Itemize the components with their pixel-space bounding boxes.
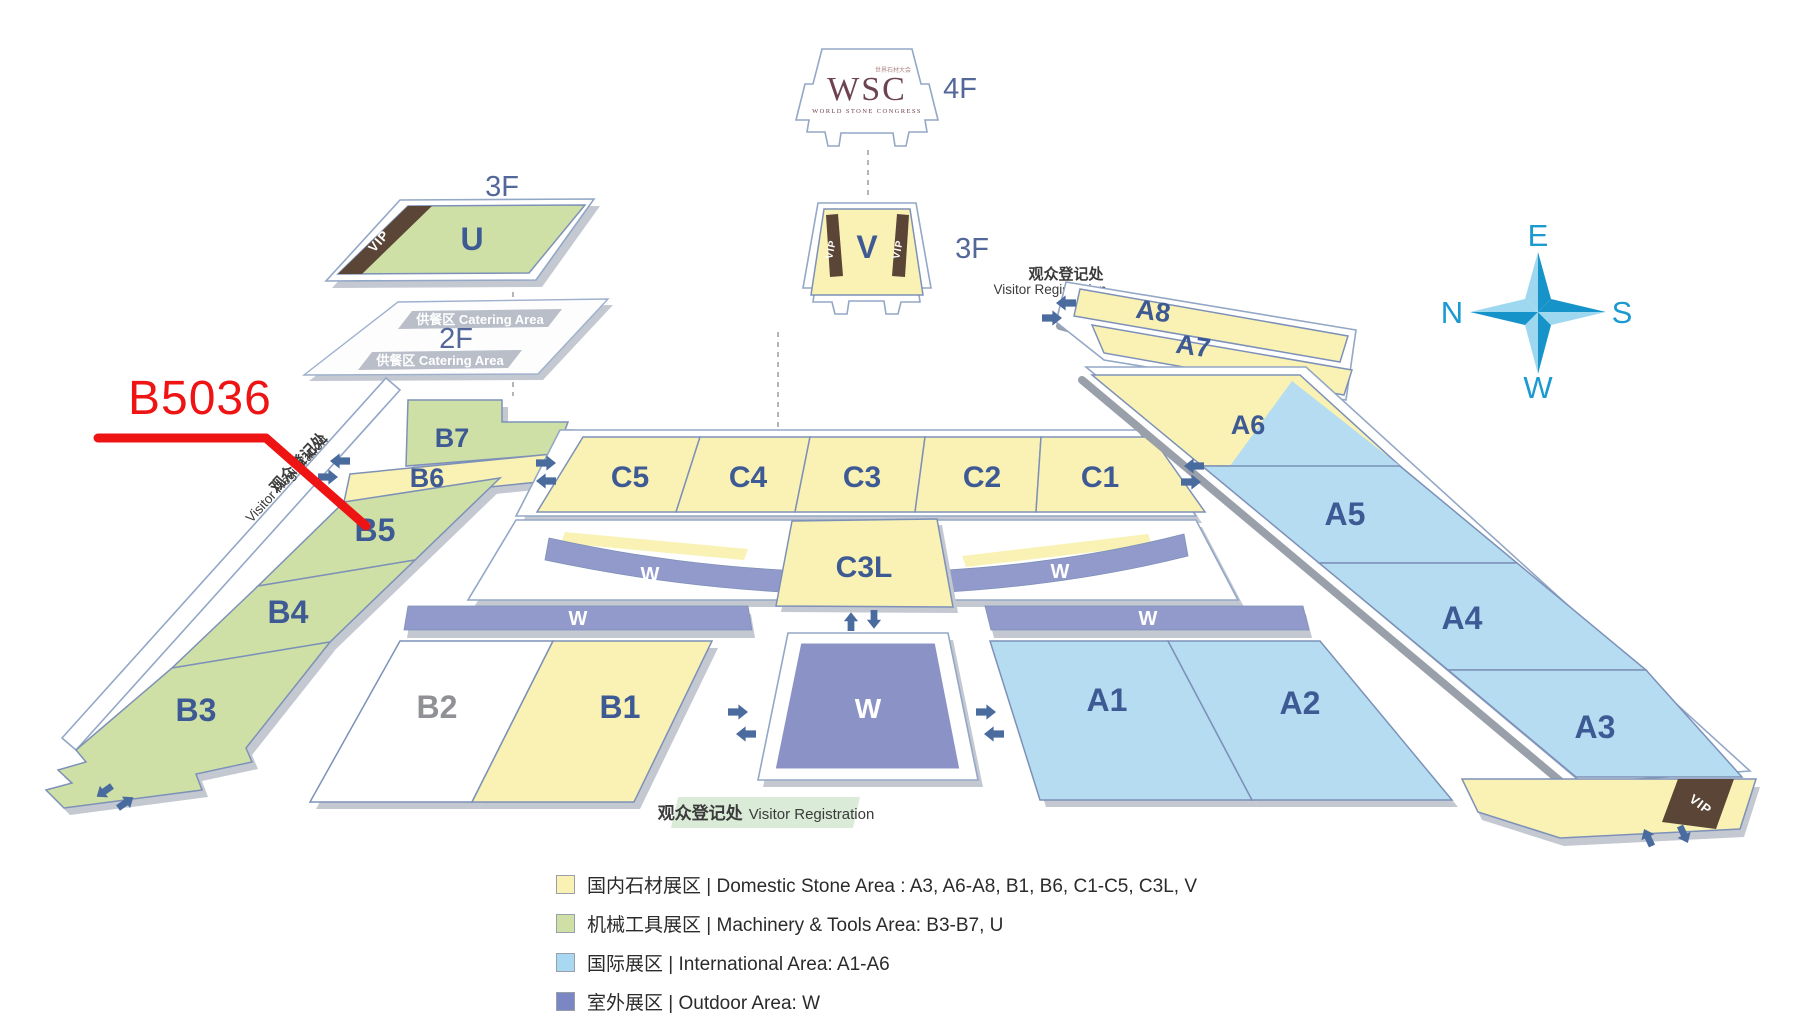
compass-rose: E N S W (1441, 218, 1633, 405)
hall-label-b4: B4 (268, 594, 309, 630)
hall-label-a3: A3 (1575, 709, 1616, 745)
legend-row-outdoor: 室外展区 | Outdoor Area: W (556, 989, 1197, 1013)
outdoor-label-right: W (1139, 608, 1158, 630)
hall-label-b2: B2 (417, 689, 458, 725)
legend-swatch-outdoor (556, 992, 575, 1011)
compass-north: N (1441, 295, 1463, 330)
booth-annotation: B5036 (128, 372, 272, 425)
outdoor-label-curved-left: W (641, 564, 660, 586)
legend-label-domestic: 国内石材展区 | Domestic Stone Area : A3, A6-A8… (587, 871, 1197, 898)
wsc-logo-subtitle: WORLD STONE CONGRESS (812, 108, 922, 115)
outdoor-label-left: W (569, 608, 588, 630)
hall-label-b7: B7 (435, 423, 470, 453)
floor-plan-canvas: 世界石材大会 WSC WORLD STONE CONGRESS 4F VIP V… (0, 0, 1800, 1032)
legend-row-machinery: 机械工具展区 | Machinery & Tools Area: B3-B7, … (556, 911, 1197, 935)
hall-label-c3l: C3L (836, 551, 893, 584)
legend-row-domestic: 国内石材展区 | Domestic Stone Area : A3, A6-A8… (556, 872, 1197, 896)
hall-label-a4: A4 (1442, 600, 1483, 636)
hall-label-c2: C2 (963, 461, 1001, 494)
compass-west: W (1523, 370, 1553, 405)
hall-label-w: W (855, 693, 882, 724)
legend: 国内石材展区 | Domestic Stone Area : A3, A6-A8… (556, 872, 1197, 1028)
hall-label-a1: A1 (1087, 682, 1128, 718)
hall-label-v: V (856, 229, 878, 265)
catering-label-lower: 供餐区 Catering Area (375, 353, 504, 368)
hall-label-a5: A5 (1325, 496, 1366, 532)
legend-label-international: 国际展区 | International Area: A1-A6 (587, 949, 890, 976)
outdoor-label-curved-right: W (1051, 561, 1070, 583)
hall-label-a8: A8 (1134, 294, 1172, 329)
compass-east: E (1528, 218, 1549, 253)
catering-label-upper: 供餐区 Catering Area (415, 312, 544, 327)
visitor-registration-top-cn: 观众登记处 (1028, 265, 1104, 283)
hall-label-b3: B3 (176, 692, 217, 728)
floor-label-4f: 4F (943, 73, 977, 105)
hall-label-b6: B6 (410, 463, 445, 493)
floor-label-3f-right: 3F (955, 233, 989, 265)
legend-swatch-machinery (556, 914, 575, 933)
hall-label-c4: C4 (729, 461, 768, 494)
legend-swatch-international (556, 953, 575, 972)
hall-label-c1: C1 (1081, 461, 1119, 494)
hall-label-a6: A6 (1231, 410, 1266, 440)
legend-label-outdoor: 室外展区 | Outdoor Area: W (587, 988, 820, 1015)
hall-label-a7: A7 (1174, 329, 1212, 364)
legend-row-international: 国际展区 | International Area: A1-A6 (556, 950, 1197, 974)
hall-label-c3: C3 (843, 461, 881, 494)
hall-label-a2: A2 (1280, 685, 1321, 721)
wsc-logo: WSC (827, 71, 907, 108)
compass-south: S (1612, 295, 1633, 330)
floor-label-3f-left: 3F (485, 171, 519, 203)
visitor-registration-bottom: 观众登记处Visitor Registration (657, 803, 875, 823)
floor-label-2f: 2F (439, 323, 473, 355)
legend-swatch-domestic (556, 875, 575, 894)
hall-label-u: U (460, 221, 483, 257)
hall-label-b1: B1 (600, 689, 641, 725)
hall-label-c5: C5 (611, 461, 649, 494)
legend-label-machinery: 机械工具展区 | Machinery & Tools Area: B3-B7, … (587, 910, 1003, 937)
